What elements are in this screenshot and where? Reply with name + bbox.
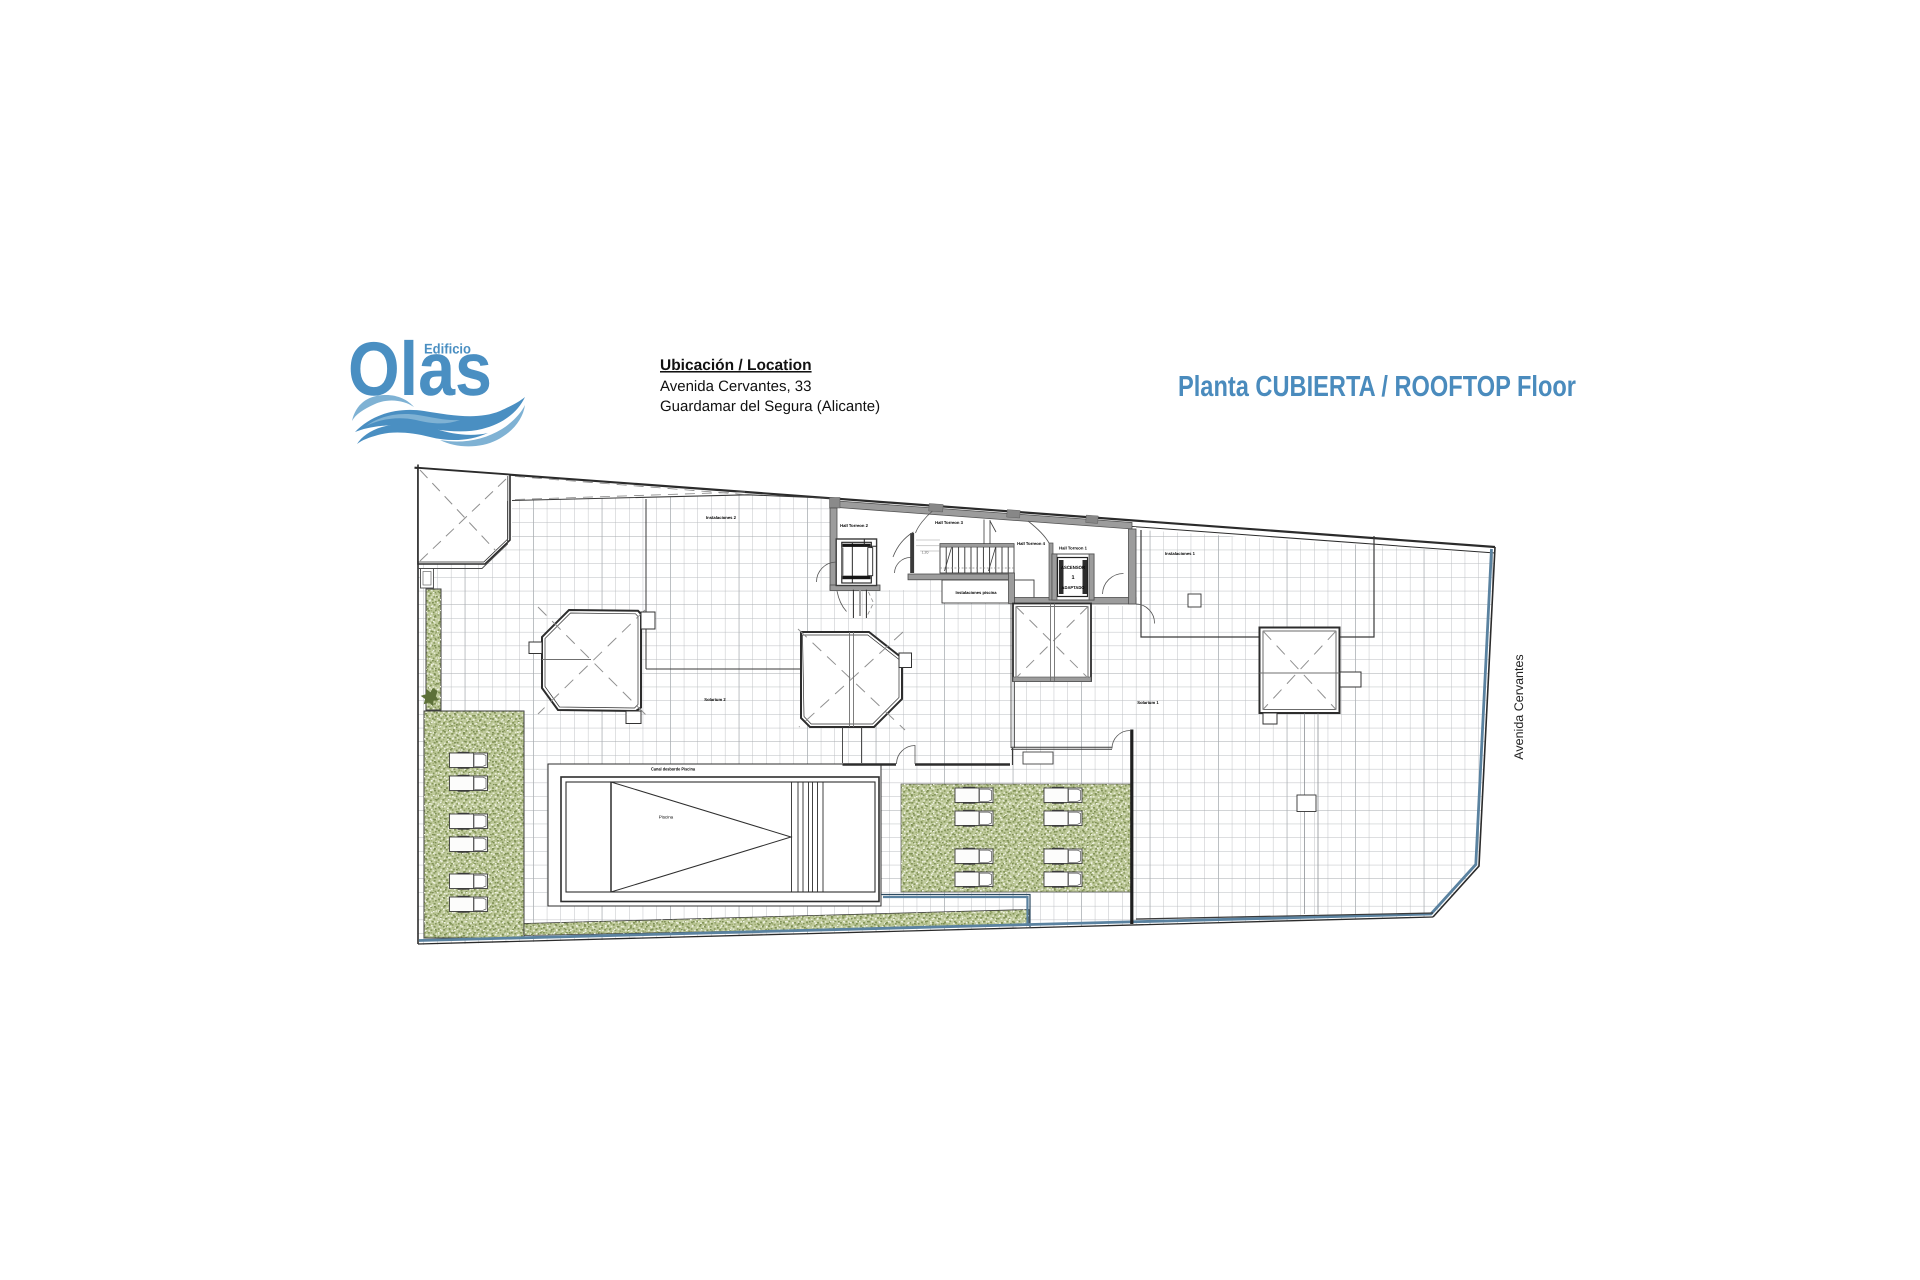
svg-text:Hall Torreon 3: Hall Torreon 3 (935, 520, 964, 525)
svg-text:Edificio: Edificio (424, 341, 471, 357)
svg-text:Instalaciones 2: Instalaciones 2 (706, 515, 737, 520)
svg-text:ADAPTADO: ADAPTADO (1062, 585, 1086, 590)
svg-text:Avenida Cervantes: Avenida Cervantes (1512, 654, 1526, 759)
svg-text:1.20: 1.20 (922, 551, 929, 555)
svg-text:Hall Torreon 4: Hall Torreon 4 (1017, 541, 1046, 546)
svg-text:Instalaciones piscina: Instalaciones piscina (956, 590, 998, 595)
svg-text:Hall Torreon 1: Hall Torreon 1 (1059, 546, 1088, 551)
svg-text:1: 1 (1071, 575, 1074, 581)
svg-text:Solarium 2: Solarium 2 (704, 697, 726, 702)
svg-text:Canal desborde Piscina: Canal desborde Piscina (651, 767, 695, 772)
svg-text:ASCENSOR: ASCENSOR (1061, 565, 1086, 570)
svg-text:Piscina: Piscina (659, 815, 674, 820)
svg-text:Ubicación / Location: Ubicación / Location (660, 357, 812, 374)
svg-text:Instalaciones 1: Instalaciones 1 (1165, 551, 1196, 556)
svg-text:Avenida Cervantes, 33: Avenida Cervantes, 33 (660, 378, 812, 395)
svg-text:Hall Torreon 2: Hall Torreon 2 (840, 523, 869, 528)
svg-text:Guardamar del Segura (Alicante: Guardamar del Segura (Alicante) (660, 398, 880, 415)
svg-text:Planta CUBIERTA / ROOFTOP Floo: Planta CUBIERTA / ROOFTOP Floor (1178, 371, 1576, 403)
svg-text:Solarium 1: Solarium 1 (1137, 700, 1159, 705)
